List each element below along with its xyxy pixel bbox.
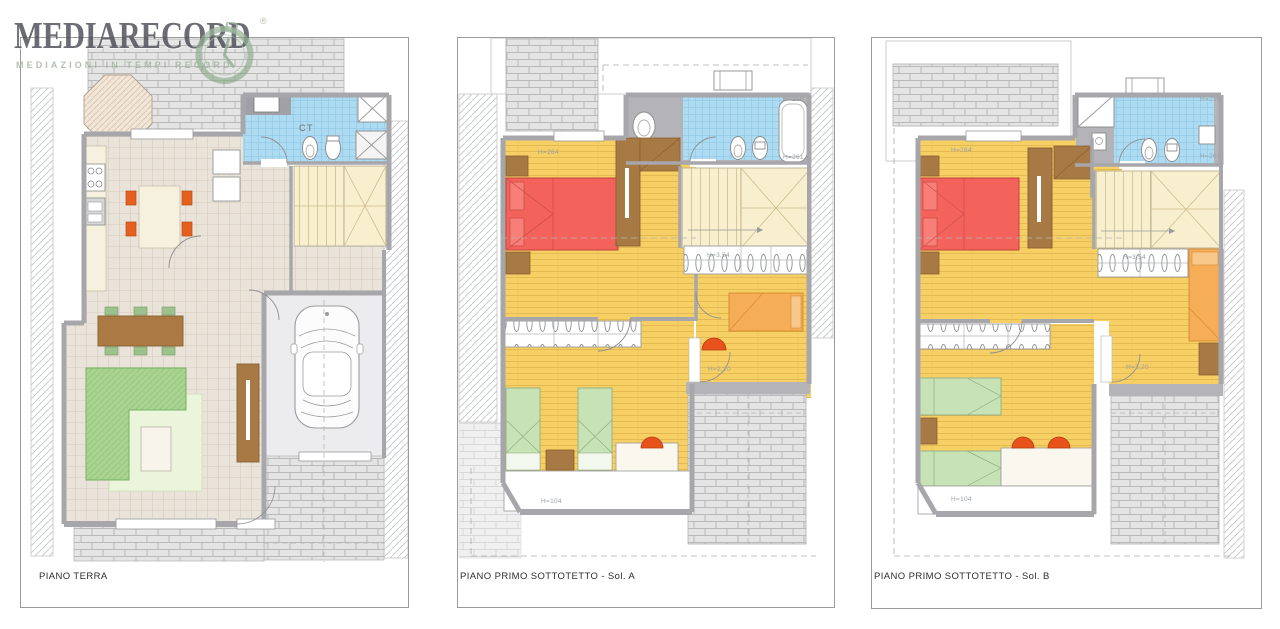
floorplan-sheet: CT PIANO TERRA: [0, 0, 1280, 629]
nightstand: [919, 418, 937, 444]
floorplan-drawing-sol-a: [458, 38, 834, 607]
tall-unit: [213, 150, 240, 174]
panel-sottotetto-sol-a: H=264 H=216 H=261 H=3,54 H=2,20 H=104 PI…: [457, 37, 835, 608]
panel-title: PIANO PRIMO SOTTOTETTO - Sol. B: [874, 571, 1050, 582]
clock-icon: [194, 22, 256, 84]
window: [554, 131, 604, 141]
height-annotation: H=2,20: [1126, 364, 1149, 371]
low-attic: [918, 486, 1095, 514]
height-annotation: H=216: [783, 96, 804, 103]
height-annotation: H=2,20: [708, 366, 731, 373]
tall-unit: [213, 177, 240, 201]
height-annotation: H=104: [951, 496, 972, 503]
height-annotation: H=261: [783, 154, 804, 161]
car: [291, 306, 363, 428]
stove: [85, 164, 105, 191]
registered-mark: ®: [260, 16, 267, 26]
room-label-ct: CT: [299, 123, 314, 133]
single-bed: [919, 451, 1001, 486]
panel-title: PIANO TERRA: [39, 571, 108, 582]
mediarecord-logo: MEDIARECORD MEDIAZIONI IN TEMPI RECORD ®: [12, 12, 312, 92]
island: [139, 186, 180, 248]
stairs: [681, 168, 811, 248]
desk: [1001, 448, 1095, 486]
washbasin: [1092, 133, 1106, 150]
dining-table: [98, 316, 183, 346]
panel-sottotetto-sol-b: H=264 H=216 H=261 H=3,54 H=2,20 H=104 PI…: [871, 37, 1262, 609]
nightstand: [919, 252, 939, 274]
height-annotation: H=216: [1200, 96, 1221, 103]
floorplan-drawing-sol-b: [872, 38, 1261, 608]
nightstand: [546, 450, 574, 470]
height-annotation: H=261: [1200, 153, 1221, 160]
low-attic: [504, 471, 694, 511]
bidet: [731, 137, 746, 160]
panel-title: PIANO PRIMO SOTTOTETTO - Sol. A: [460, 571, 635, 582]
terrace: [688, 394, 806, 544]
window: [966, 131, 1021, 141]
height-annotation: H=104: [541, 498, 562, 505]
stairs: [1094, 171, 1221, 248]
stairs: [294, 166, 386, 246]
garage-door: [299, 452, 371, 461]
bidet: [1142, 139, 1157, 162]
bidet: [303, 137, 318, 160]
nightstand: [506, 252, 530, 274]
window: [116, 519, 216, 529]
single-bed: [919, 378, 1001, 415]
coffee-table: [141, 427, 171, 471]
floorplan-drawing-piano-terra: [21, 38, 408, 607]
height-annotation: H=264: [951, 147, 972, 154]
window: [131, 129, 193, 139]
height-annotation: H=3,54: [1123, 254, 1146, 261]
nightstand: [506, 156, 528, 176]
height-annotation: H=3,54: [707, 252, 730, 259]
height-annotation: H=264: [538, 149, 559, 156]
panel-piano-terra: CT PIANO TERRA: [20, 37, 409, 608]
nightstand: [919, 156, 939, 176]
